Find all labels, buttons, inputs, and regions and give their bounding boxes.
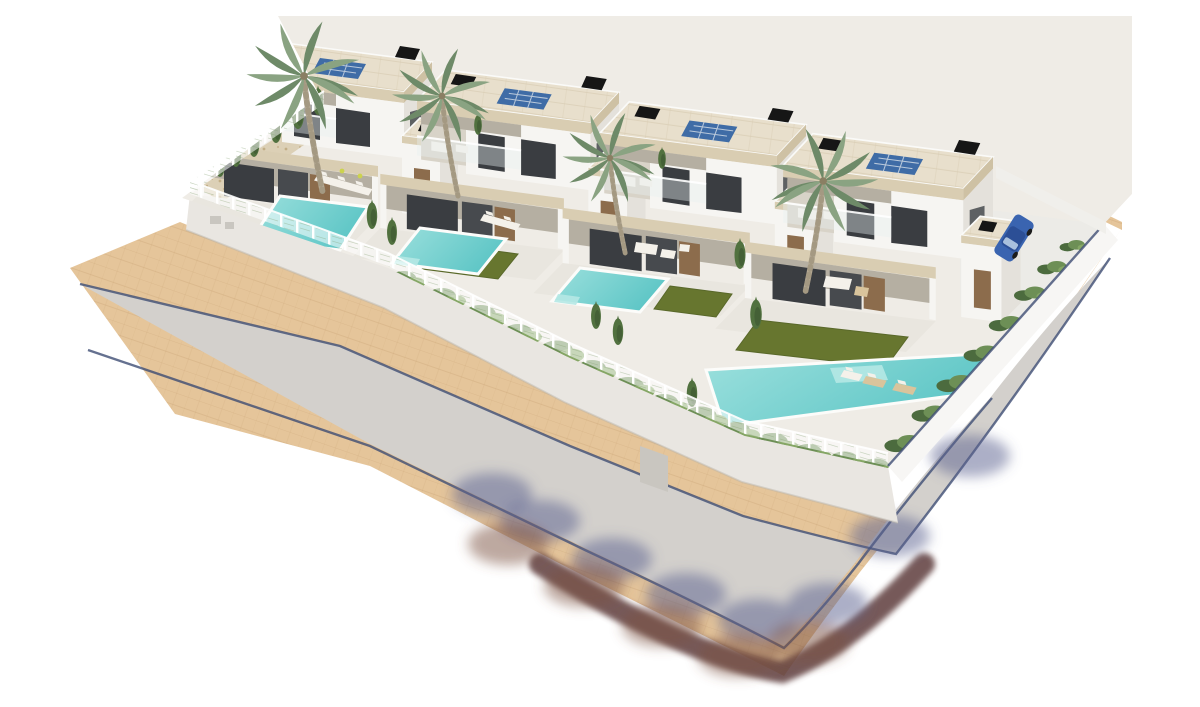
architectural-render bbox=[40, 16, 1200, 691]
render-canvas bbox=[40, 16, 1200, 691]
utility-box bbox=[210, 216, 221, 224]
utility-box bbox=[225, 222, 234, 229]
